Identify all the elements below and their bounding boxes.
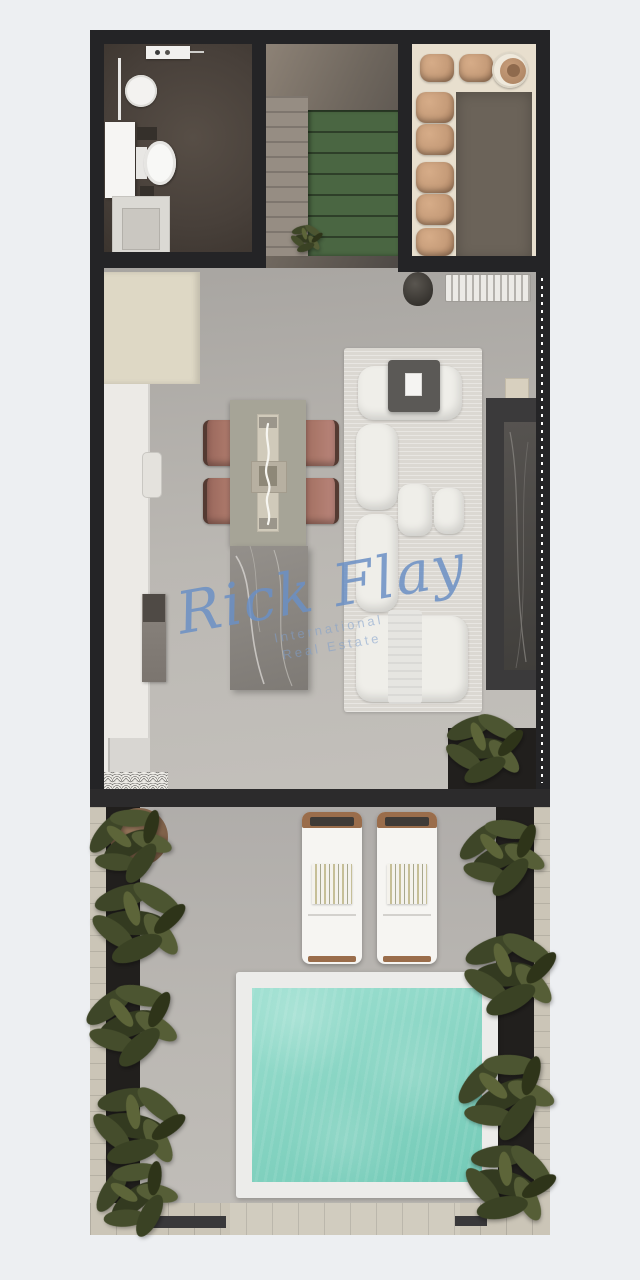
- shower-drain-panel: [122, 208, 160, 250]
- throw-blanket: [388, 610, 422, 704]
- floor-cushion: [459, 54, 493, 82]
- marble-veins: [230, 546, 308, 690]
- marble-veins: [504, 422, 536, 670]
- lounger-frame: [308, 956, 356, 962]
- floor-cushion: [416, 162, 454, 193]
- slatted-bench: [445, 274, 531, 302]
- glass-sliding-door: [541, 278, 543, 783]
- lounger-hinge: [383, 914, 431, 916]
- towel: [387, 864, 427, 904]
- floor-cushion: [416, 124, 454, 155]
- wardrobe-cabinet: [104, 272, 200, 384]
- floor-cushion: [416, 228, 454, 256]
- lounger-headrest: [310, 817, 354, 826]
- floor-plan-image: Rick Flay International Real Estate: [0, 0, 640, 1280]
- sofa-cushion: [398, 484, 432, 536]
- sun-lounger: [377, 812, 437, 964]
- lounger-frame: [383, 956, 431, 962]
- lounge-room-wall: [398, 44, 412, 268]
- washbasin: [125, 75, 157, 107]
- lounge-room-wall: [398, 256, 550, 272]
- lounger-hinge: [308, 914, 356, 916]
- sofa-cushion: [356, 424, 398, 510]
- tap-icon: [165, 50, 170, 55]
- towel: [312, 864, 352, 904]
- floor-cushion: [420, 54, 454, 82]
- hanging-planter: [403, 272, 433, 306]
- cooktop: [143, 594, 165, 622]
- kitchen-counter: [104, 384, 150, 776]
- book: [405, 373, 422, 396]
- kitchen-sink: [142, 452, 162, 498]
- lounger-headrest: [385, 817, 429, 826]
- floor-cushion: [416, 92, 454, 123]
- deck-walkway-light: [230, 1203, 460, 1235]
- vanity-unit: [105, 122, 135, 198]
- basket-knob: [507, 64, 520, 77]
- towel-rail: [190, 51, 204, 53]
- basin-counter: [118, 58, 121, 120]
- floor-cushion: [416, 194, 454, 225]
- toilet: [144, 141, 176, 185]
- decor-branch: [258, 420, 278, 528]
- indoor-plant: [426, 695, 546, 803]
- tap-icon: [155, 50, 160, 55]
- sofa-cushion: [434, 488, 464, 534]
- wall-niche: [137, 127, 157, 140]
- sofa-cushion: [356, 514, 398, 612]
- sun-lounger: [302, 812, 362, 964]
- bathroom-wall: [252, 44, 266, 268]
- lounge-rug: [456, 92, 532, 260]
- bathroom-wall: [104, 252, 266, 268]
